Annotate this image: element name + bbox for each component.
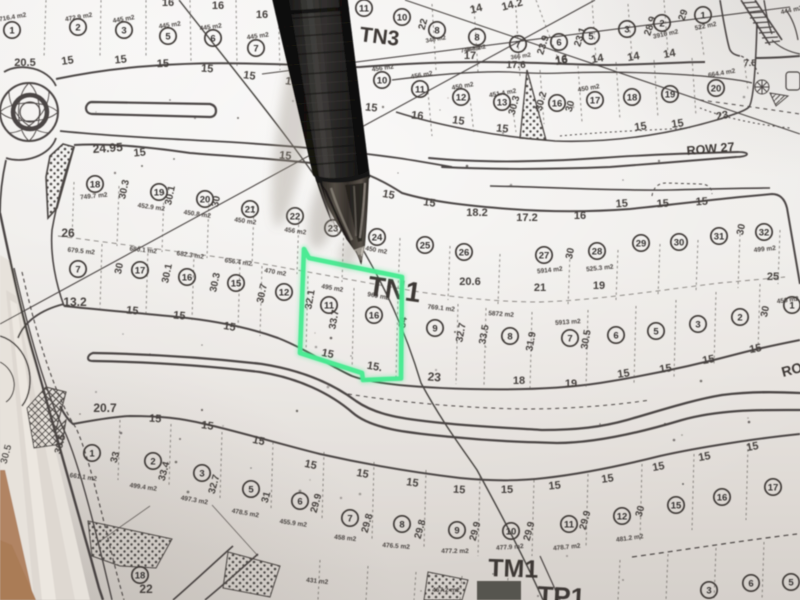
svg-text:16: 16 — [162, 0, 174, 9]
svg-text:10: 10 — [506, 526, 517, 537]
svg-text:19: 19 — [665, 89, 676, 100]
svg-text:6: 6 — [613, 330, 618, 341]
svg-text:7.5: 7.5 — [744, 58, 757, 68]
svg-text:6: 6 — [748, 578, 753, 589]
svg-text:17: 17 — [590, 95, 601, 106]
svg-text:15: 15 — [697, 450, 711, 464]
svg-text:15: 15 — [671, 117, 685, 131]
svg-text:15: 15 — [656, 198, 669, 211]
svg-text:20.5: 20.5 — [14, 57, 35, 69]
svg-text:19: 19 — [593, 280, 605, 292]
svg-text:26: 26 — [61, 226, 75, 240]
svg-text:20.6: 20.6 — [459, 276, 480, 288]
svg-text:12: 12 — [617, 511, 628, 522]
svg-text:15: 15 — [695, 196, 708, 209]
svg-text:15: 15 — [659, 362, 673, 376]
svg-text:8: 8 — [399, 519, 404, 530]
svg-text:15: 15 — [501, 484, 513, 496]
svg-text:21: 21 — [245, 204, 256, 215]
svg-text:24: 24 — [372, 232, 383, 243]
svg-text:31: 31 — [714, 231, 725, 242]
svg-text:15: 15 — [133, 146, 146, 159]
svg-text:18.2: 18.2 — [466, 207, 487, 219]
svg-text:1: 1 — [9, 25, 15, 36]
svg-text:15: 15 — [114, 53, 127, 66]
svg-text:28: 28 — [592, 246, 603, 257]
svg-text:25: 25 — [420, 240, 431, 251]
svg-text:15: 15 — [423, 196, 437, 210]
svg-text:12: 12 — [456, 92, 467, 103]
svg-text:22: 22 — [290, 211, 301, 222]
svg-text:3: 3 — [199, 468, 204, 479]
svg-text:TN3: TN3 — [358, 23, 400, 51]
svg-text:15: 15 — [201, 419, 215, 433]
svg-text:5: 5 — [248, 484, 254, 495]
svg-text:16: 16 — [555, 53, 569, 67]
svg-text:15: 15 — [201, 63, 214, 76]
svg-text:3: 3 — [121, 25, 126, 36]
svg-text:19: 19 — [565, 378, 577, 390]
svg-text:16: 16 — [411, 109, 424, 122]
svg-text:20: 20 — [711, 83, 722, 94]
svg-text:8: 8 — [434, 25, 439, 36]
svg-text:15: 15 — [748, 342, 762, 356]
svg-text:17: 17 — [768, 482, 779, 493]
svg-text:15: 15 — [173, 309, 186, 322]
svg-text:15: 15 — [701, 353, 715, 367]
svg-text:23: 23 — [427, 370, 442, 385]
svg-text:15: 15 — [365, 101, 378, 114]
svg-text:15: 15 — [601, 472, 615, 486]
svg-text:15: 15 — [149, 413, 162, 426]
svg-text:1: 1 — [789, 300, 795, 311]
svg-text:6: 6 — [297, 496, 302, 507]
svg-text:27: 27 — [539, 250, 550, 261]
svg-text:18: 18 — [90, 179, 101, 190]
svg-text:17.6: 17.6 — [506, 60, 526, 71]
svg-text:15: 15 — [453, 484, 466, 497]
svg-text:15: 15 — [222, 320, 236, 334]
svg-text:3: 3 — [695, 319, 700, 330]
svg-text:15: 15 — [381, 188, 395, 202]
svg-text:20: 20 — [200, 194, 211, 205]
svg-text:11: 11 — [415, 84, 426, 95]
svg-text:6: 6 — [556, 37, 561, 48]
svg-text:15: 15 — [671, 500, 682, 511]
svg-text:25: 25 — [767, 271, 779, 283]
svg-text:15: 15 — [61, 54, 75, 68]
svg-text:11: 11 — [564, 519, 575, 530]
svg-text:29: 29 — [636, 238, 647, 249]
svg-text:7: 7 — [515, 39, 520, 50]
svg-text:15: 15 — [634, 120, 648, 134]
svg-text:7: 7 — [75, 264, 80, 275]
svg-text:2: 2 — [737, 312, 742, 323]
svg-text:9: 9 — [454, 525, 459, 536]
svg-text:15: 15 — [617, 367, 631, 381]
svg-text:12: 12 — [279, 287, 290, 298]
svg-text:19: 19 — [154, 187, 165, 198]
svg-text:467.2 m2: 467.2 m2 — [432, 587, 460, 594]
svg-text:16: 16 — [256, 9, 268, 21]
svg-text:5: 5 — [653, 326, 659, 337]
svg-text:TM1: TM1 — [488, 554, 539, 584]
svg-text:15: 15 — [157, 58, 170, 70]
svg-text:10: 10 — [377, 75, 388, 86]
svg-text:15: 15 — [303, 458, 317, 472]
svg-text:TP1: TP1 — [537, 580, 586, 600]
svg-text:1: 1 — [89, 448, 95, 459]
svg-text:8: 8 — [507, 331, 512, 342]
svg-text:13: 13 — [497, 97, 508, 108]
svg-text:10: 10 — [397, 12, 408, 23]
svg-text:15: 15 — [243, 69, 257, 83]
svg-text:7: 7 — [253, 43, 258, 54]
svg-text:1: 1 — [700, 10, 706, 21]
svg-text:2: 2 — [150, 456, 155, 467]
svg-text:32: 32 — [759, 227, 770, 238]
svg-text:22: 22 — [139, 582, 153, 596]
svg-text:3: 3 — [624, 24, 629, 35]
svg-text:16: 16 — [369, 310, 380, 321]
svg-text:11: 11 — [324, 300, 335, 311]
svg-text:15: 15 — [126, 304, 139, 317]
svg-text:24.95: 24.95 — [92, 140, 123, 156]
svg-text:16: 16 — [182, 272, 193, 283]
svg-text:23: 23 — [715, 109, 729, 123]
svg-text:11: 11 — [359, 3, 370, 14]
svg-text:21: 21 — [534, 282, 546, 294]
svg-text:15: 15 — [651, 460, 665, 474]
svg-text:15: 15 — [231, 278, 242, 289]
svg-text:5: 5 — [588, 31, 594, 42]
svg-text:18: 18 — [627, 92, 638, 103]
svg-text:15: 15 — [745, 440, 759, 454]
svg-text:15: 15 — [452, 114, 466, 128]
svg-text:7: 7 — [347, 513, 352, 524]
svg-text:30: 30 — [674, 237, 685, 248]
svg-text:16: 16 — [552, 98, 563, 109]
svg-text:20.7: 20.7 — [93, 401, 117, 415]
svg-text:8: 8 — [474, 32, 479, 43]
svg-text:5: 5 — [165, 31, 171, 42]
svg-text:15: 15 — [615, 198, 628, 211]
svg-text:477.2 m2: 477.2 m2 — [441, 548, 469, 555]
svg-text:16: 16 — [212, 0, 224, 12]
svg-text:26: 26 — [459, 247, 470, 258]
svg-text:16: 16 — [717, 492, 728, 503]
svg-text:15: 15 — [355, 467, 369, 481]
svg-text:2: 2 — [75, 22, 80, 33]
svg-text:18: 18 — [135, 570, 146, 581]
svg-text:5: 5 — [788, 577, 794, 588]
svg-text:16: 16 — [574, 210, 586, 222]
svg-text:17: 17 — [135, 265, 146, 276]
svg-text:13.2: 13.2 — [63, 295, 87, 309]
svg-text:2: 2 — [659, 18, 664, 29]
svg-text:9: 9 — [432, 323, 437, 334]
svg-text:15: 15 — [548, 479, 561, 492]
svg-text:7: 7 — [567, 333, 572, 344]
svg-text:15: 15 — [251, 434, 265, 448]
svg-text:6: 6 — [210, 33, 215, 44]
svg-text:18: 18 — [513, 375, 525, 387]
svg-text:17.2: 17.2 — [516, 212, 537, 224]
svg-text:15: 15 — [406, 476, 420, 490]
svg-text:3: 3 — [706, 585, 711, 596]
